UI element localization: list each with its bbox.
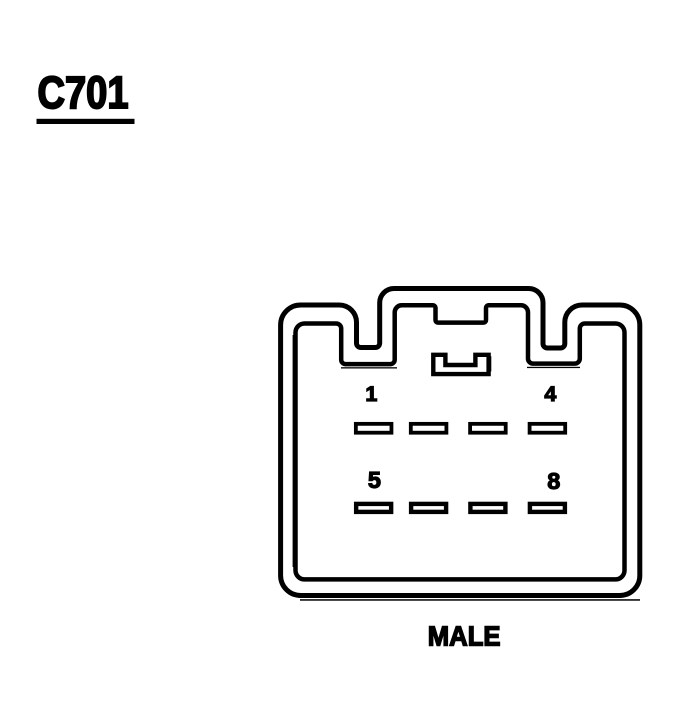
svg-text:1: 1 (365, 382, 377, 406)
svg-text:MALE: MALE (428, 620, 501, 651)
svg-text:8: 8 (547, 468, 560, 494)
svg-text:5: 5 (368, 467, 381, 493)
svg-text:4: 4 (544, 382, 556, 406)
svg-text:C701: C701 (38, 67, 129, 118)
